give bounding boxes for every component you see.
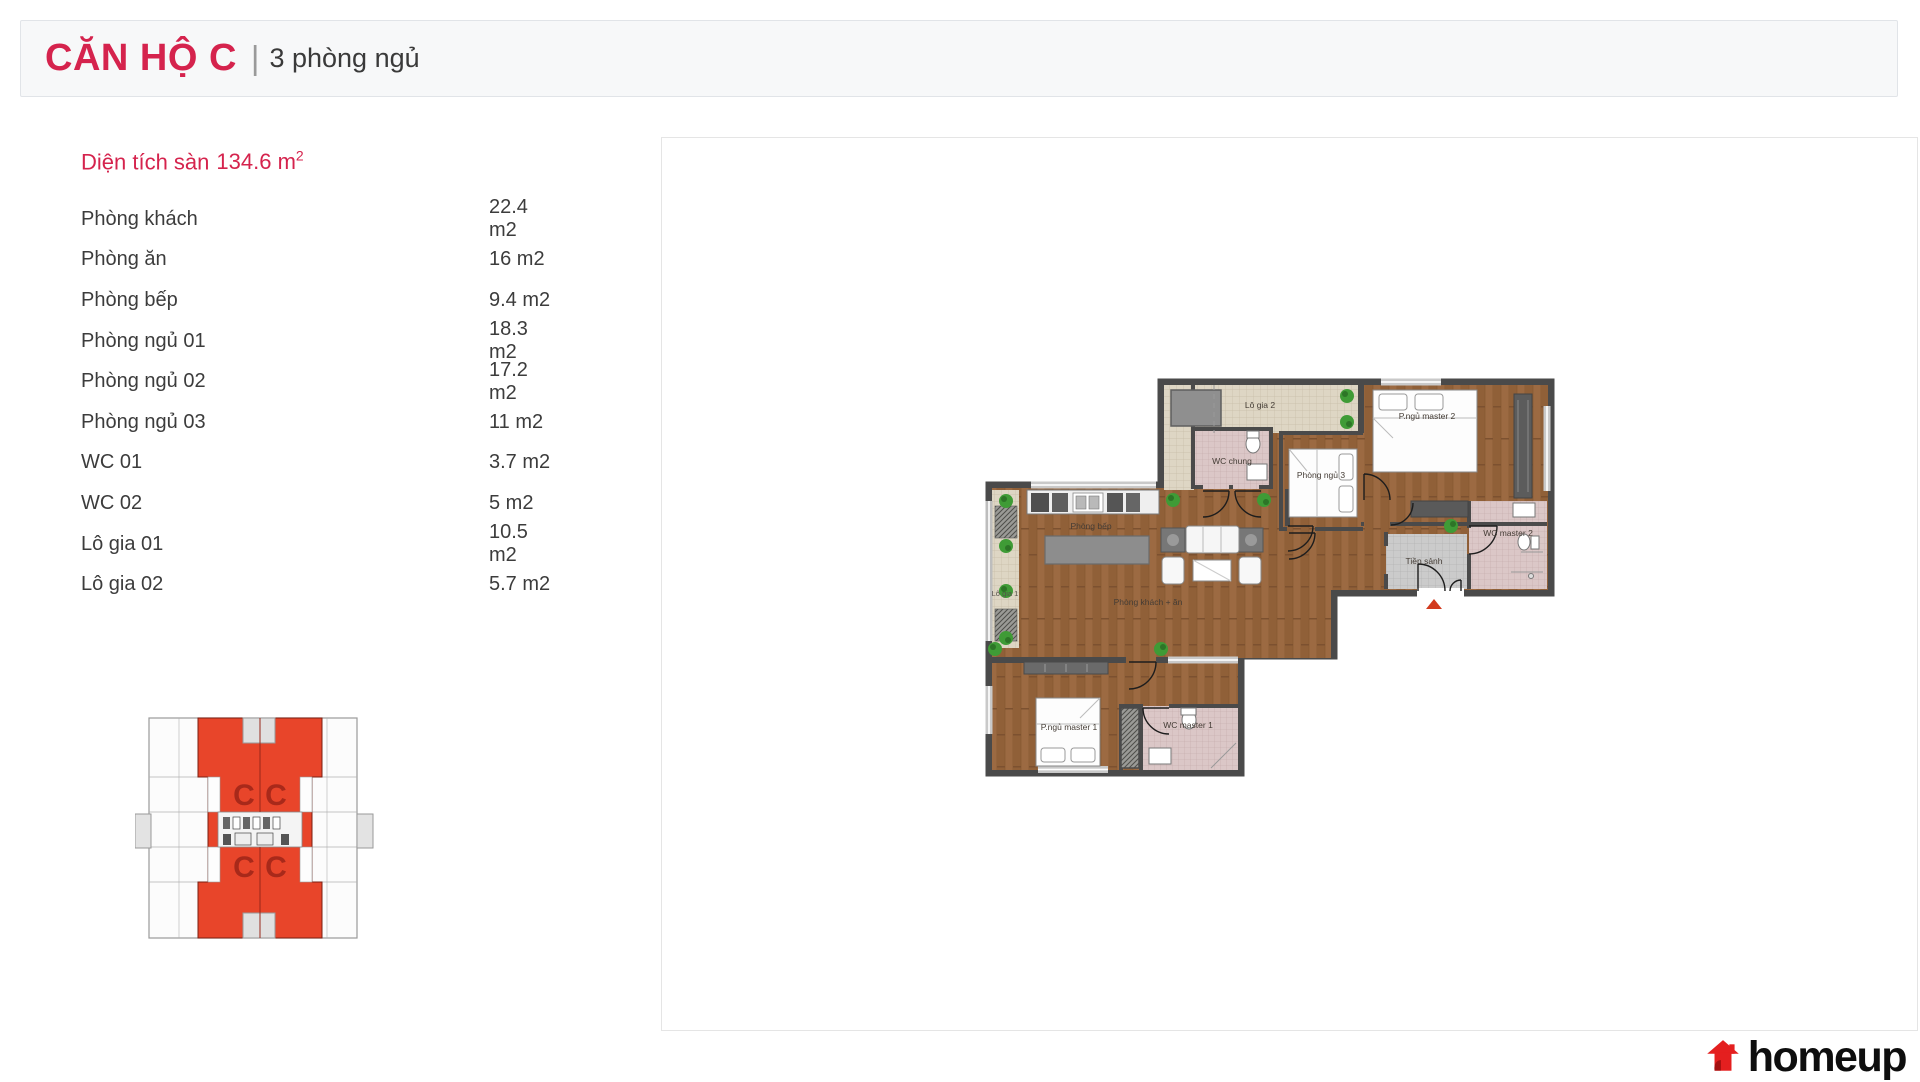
header-bar: CĂN HỘ C | 3 phòng ngủ [20, 20, 1898, 97]
room-area-value: 3.7 m2 [489, 451, 561, 474]
table-row: Phòng ngủ 03 11 m2 [81, 402, 561, 443]
label-p-ngu-master-1: P.ngủ master 1 [1041, 722, 1098, 732]
page-title: CĂN HỘ C [45, 37, 237, 80]
table-row: Phòng ngủ 02 17.2 m2 [81, 361, 561, 402]
room-name: Phòng ngủ 02 [81, 370, 489, 393]
homeup-logo-text: homeup [1748, 1033, 1906, 1082]
room-name: Phòng ngủ 03 [81, 411, 489, 434]
left-wing-tab [135, 814, 151, 848]
entrance-arrow [1426, 599, 1442, 609]
hall-cabinet [1411, 501, 1468, 517]
total-area-unit: m2 [278, 149, 304, 174]
label-lo-gia-2: Lô gia 2 [1245, 400, 1276, 410]
floorplan-svg: Lô gia 2 WC chung P.ngủ master 2 Phòng n… [981, 376, 1581, 786]
bed-master-1 [1036, 698, 1100, 766]
room-name: Phòng ăn [81, 248, 489, 271]
label-wc-master-1: WC master 1 [1163, 720, 1213, 730]
top-notch [243, 718, 275, 743]
room-area-value: 9.4 m2 [489, 289, 561, 312]
room-area-value: 18.3 m2 [489, 318, 561, 364]
room-name: Lô gia 02 [81, 573, 489, 596]
total-area-value: 134.6 [216, 149, 271, 174]
title-separator: | [251, 39, 260, 77]
table-row: WC 02 5 m2 [81, 483, 561, 524]
room-areas-table: Phòng khách 22.4 m2 Phòng ăn 16 m2 Phòng… [81, 199, 561, 605]
table-row: Lô gia 01 10.5 m2 [81, 524, 561, 565]
label-wc-chung: WC chung [1212, 456, 1252, 466]
page-subtitle: 3 phòng ngủ [269, 43, 419, 74]
room-area-value: 5 m2 [489, 492, 561, 515]
room-area-value: 16 m2 [489, 248, 561, 271]
room-area-value: 10.5 m2 [489, 521, 561, 567]
floorplan-panel: Lô gia 2 WC chung P.ngủ master 2 Phòng n… [661, 137, 1918, 1031]
building-key-plan: C C C C [135, 716, 375, 942]
bottom-notch [243, 913, 275, 938]
label-phong-ngu-3: Phòng ngủ 3 [1297, 470, 1345, 480]
kitchen-counter [1027, 490, 1159, 514]
unit-letter: C [265, 851, 287, 884]
room-name: WC 01 [81, 451, 489, 474]
unit-letter: C [265, 779, 287, 812]
table-row: Phòng khách 22.4 m2 [81, 199, 561, 240]
right-wing-tab [357, 814, 373, 848]
room-name: Lô gia 01 [81, 533, 489, 556]
table-row: Phòng ngủ 01 18.3 m2 [81, 321, 561, 362]
label-tien-sanh: Tiền sảnh [1405, 556, 1442, 566]
kitchen-island [1045, 536, 1149, 564]
unit-letter: C [233, 779, 255, 812]
service-shaft [1121, 708, 1139, 768]
room-name: Phòng ngủ 01 [81, 330, 489, 353]
table-row: WC 01 3.7 m2 [81, 443, 561, 484]
homeup-house-icon [1703, 1038, 1743, 1078]
label-phong-bep: Phòng bếp [1070, 521, 1111, 531]
room-name: Phòng bếp [81, 289, 489, 312]
homeup-logo: homeup [1703, 1033, 1906, 1082]
bed-bedroom-3 [1289, 449, 1357, 517]
table-row: Lô gia 02 5.7 m2 [81, 564, 561, 605]
total-area-label: Diện tích sàn [81, 149, 209, 174]
label-p-ngu-master-2: P.ngủ master 2 [1399, 411, 1456, 421]
room-name: Phòng khách [81, 208, 489, 231]
label-phong-khach-an: Phòng khách + ăn [1114, 597, 1183, 607]
table-row: Phòng ăn 16 m2 [81, 240, 561, 281]
room-area-value: 17.2 m2 [489, 359, 561, 405]
table-row: Phòng bếp 9.4 m2 [81, 280, 561, 321]
room-area-value: 5.7 m2 [489, 573, 561, 596]
room-name: WC 02 [81, 492, 489, 515]
wardrobe-master-2 [1514, 394, 1532, 498]
unit-letter: C [233, 851, 255, 884]
bed-master-2 [1373, 390, 1477, 472]
label-wc-master-2: WC master 2 [1483, 528, 1533, 538]
total-area-heading: Diện tích sàn134.6 m2 [81, 148, 304, 175]
room-area-value: 22.4 m2 [489, 196, 561, 242]
label-lo-gia-1: Lô gia 1 [992, 589, 1019, 598]
room-area-value: 11 m2 [489, 411, 561, 434]
